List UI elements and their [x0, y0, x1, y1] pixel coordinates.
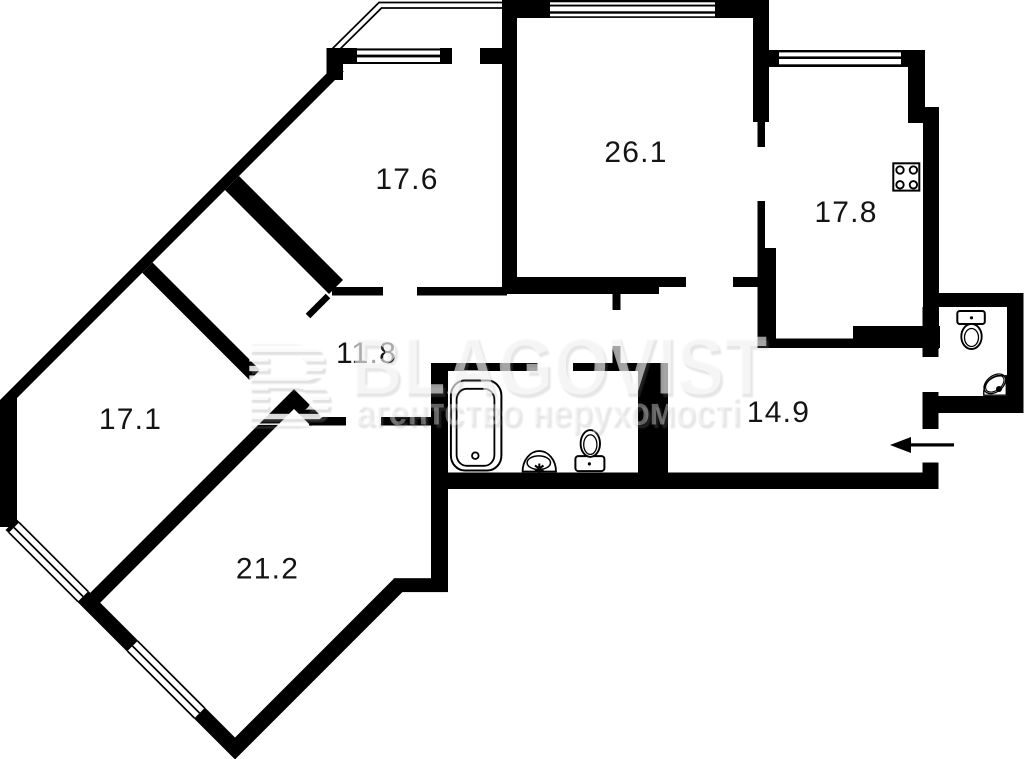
svg-text:17.6: 17.6	[375, 163, 438, 196]
svg-text:21.2: 21.2	[236, 553, 299, 586]
svg-text:17.1: 17.1	[99, 403, 162, 436]
svg-text:агентство нерухомості: агентство нерухомості	[355, 391, 740, 434]
svg-text:B: B	[241, 315, 336, 451]
svg-text:17.8: 17.8	[814, 196, 877, 229]
svg-text:26.1: 26.1	[604, 136, 667, 169]
